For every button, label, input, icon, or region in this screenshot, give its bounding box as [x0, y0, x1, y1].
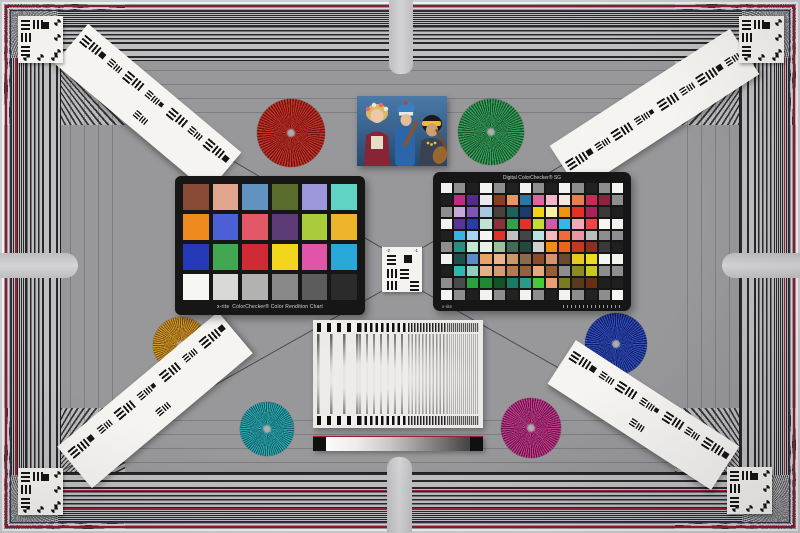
vertical-bars: [635, 422, 645, 431]
flower: [384, 107, 388, 111]
corner-resolution-target-bottom-right: [727, 467, 772, 514]
sg-color-patch: [454, 195, 465, 205]
sg-color-patch: [572, 266, 583, 276]
sg-color-patch: [586, 266, 597, 276]
sg-color-patch: [586, 254, 597, 264]
color-patch: [242, 274, 268, 300]
sg-color-patch: [441, 219, 452, 229]
color-patch: [331, 184, 357, 210]
solid-square-mark: [151, 382, 157, 388]
corner-resolution-target-bottom-left: [18, 468, 63, 515]
corner-resolution-target-top-right: [739, 16, 784, 63]
sg-color-patch: [507, 231, 518, 241]
sg-color-patch: [520, 290, 531, 300]
sg-color-patch: [559, 254, 570, 264]
sg-color-patch: [559, 242, 570, 252]
frequency-sweep-target: [313, 320, 483, 428]
sg-color-patch: [507, 266, 518, 276]
usaf-bars: [730, 471, 739, 481]
sg-color-patch: [612, 266, 623, 276]
sg-color-patch: [441, 290, 452, 300]
necklace-bead: [434, 142, 437, 145]
sg-color-patch: [480, 183, 491, 193]
color-patch: [183, 184, 209, 210]
sg-color-patch: [599, 242, 610, 252]
usaf-bars: [387, 255, 396, 265]
solid-square-mark: [98, 50, 106, 58]
sg-color-patch: [494, 219, 505, 229]
solid-square-mark: [589, 365, 597, 373]
usaf-bar-group: [634, 108, 655, 125]
usaf-bar-group: [97, 419, 113, 434]
color-patch: [272, 274, 298, 300]
usaf-bars: [742, 46, 751, 56]
sg-color-patch: [612, 207, 623, 217]
sg-color-patch: [546, 254, 557, 264]
sg-color-patch: [507, 195, 518, 205]
sg-color-patch: [494, 183, 505, 193]
sg-color-patch: [586, 290, 597, 300]
color-patch: [213, 244, 239, 270]
usaf-bar-group: [684, 426, 701, 440]
color-patch: [213, 214, 239, 240]
solid-square-mark: [751, 473, 758, 480]
sg-color-patch: [467, 219, 478, 229]
sg-color-patch: [599, 266, 610, 276]
sg-color-patch: [454, 266, 465, 276]
sg-color-patch: [480, 290, 491, 300]
vertical-bars: [194, 131, 204, 141]
usaf-bar-group: [122, 70, 145, 91]
usaf-bar-group: [107, 58, 123, 73]
color-patch: [183, 274, 209, 300]
sg-color-patch: [494, 207, 505, 217]
sg-color-patch: [533, 219, 544, 229]
sg-color-patch: [533, 231, 544, 241]
sg-color-patch: [546, 195, 557, 205]
bar-segment: [359, 416, 408, 425]
sg-color-patch: [494, 266, 505, 276]
sg-color-patch: [480, 266, 491, 276]
sg-color-patch: [533, 278, 544, 288]
sg-color-patch: [507, 183, 518, 193]
sg-color-patch: [599, 195, 610, 205]
sg-color-patch: [572, 231, 583, 241]
sg-color-patch: [546, 207, 557, 217]
usaf-bar-group: [700, 436, 730, 460]
center-resolution-target: -2 -1: [382, 247, 422, 292]
usaf-bar-group: [628, 418, 645, 432]
color-patch: [242, 214, 268, 240]
sg-color-patch: [494, 242, 505, 252]
solid-square-mark: [42, 22, 49, 29]
usaf-bar-group: [656, 92, 679, 112]
sg-color-patch: [467, 242, 478, 252]
sg-color-patch: [612, 219, 623, 229]
usaf-bar-group: [188, 125, 204, 140]
sg-color-patch: [454, 242, 465, 252]
color-patch: [272, 214, 298, 240]
usaf-bars: [21, 20, 30, 30]
colorchecker-classic-chart: x-rite ColorChecker® Color Rendition Cha…: [175, 176, 365, 315]
sg-color-patch: [480, 219, 491, 229]
sg-color-patch: [441, 207, 452, 217]
usaf-bar-group: [159, 361, 182, 382]
sg-color-patch: [612, 183, 623, 193]
siemens-star-magenta: [501, 398, 561, 458]
color-patch: [242, 244, 268, 270]
pinwheel-mark: [54, 34, 61, 41]
sg-color-patch: [546, 231, 557, 241]
pinwheel-mark: [772, 54, 779, 61]
pinwheel-mark: [54, 19, 61, 26]
color-patch: [331, 244, 357, 270]
sg-color-patch: [494, 195, 505, 205]
usaf-bars: [21, 485, 31, 494]
color-patch: [242, 184, 268, 210]
usaf-bar-group: [137, 381, 158, 400]
sg-color-patch: [586, 219, 597, 229]
sg-color-patch: [520, 183, 531, 193]
sg-color-patch: [467, 195, 478, 205]
usaf-bar-group: [615, 380, 638, 400]
usaf-bar-group: [113, 399, 136, 420]
usaf-bars: [730, 484, 740, 493]
sweep-segment: [408, 334, 447, 414]
sg-color-patch: [454, 231, 465, 241]
color-patch: [302, 214, 328, 240]
pinwheel-mark: [763, 470, 770, 477]
face: [401, 114, 412, 126]
cream-blouse: [371, 136, 383, 149]
sg-color-patch: [559, 290, 570, 300]
pinwheel-mark: [746, 505, 753, 512]
solid-square-mark: [404, 255, 412, 263]
sg-color-patch: [572, 207, 583, 217]
sg-color-patch: [572, 278, 583, 288]
sg-color-patch: [441, 278, 452, 288]
sg-color-patch: [441, 242, 452, 252]
sg-color-patch: [599, 231, 610, 241]
usaf-bars: [21, 472, 30, 482]
usaf-bars: [21, 33, 31, 42]
vertical-bars: [670, 417, 683, 430]
necklace-bead: [430, 143, 433, 146]
sg-color-patch: [507, 278, 518, 288]
sg-color-patch: [612, 231, 623, 241]
sg-color-patch: [586, 278, 597, 288]
pinwheel-mark: [54, 486, 61, 493]
solid-square-mark: [715, 64, 723, 72]
bottom-center-tab: [387, 457, 412, 533]
sg-color-patch: [533, 195, 544, 205]
usaf-bars: [742, 20, 751, 30]
top-center-tab: [389, 0, 413, 74]
sg-color-patch: [467, 290, 478, 300]
usaf-bar-group: [166, 107, 189, 128]
flower: [366, 107, 370, 111]
colorchecker-sg-grid: [441, 183, 623, 300]
vertical-bars: [624, 387, 637, 400]
sg-color-patch: [533, 207, 544, 217]
face: [371, 109, 384, 123]
sg-color-patch: [480, 242, 491, 252]
sg-color-patch: [441, 195, 452, 205]
pinwheel-mark: [775, 34, 782, 41]
pinwheel-mark: [37, 54, 44, 61]
pinwheel-mark: [37, 506, 44, 513]
usaf-bar-group: [678, 82, 695, 96]
bar-segment: [317, 416, 359, 425]
sg-color-patch: [586, 231, 597, 241]
sg-color-patch: [559, 195, 570, 205]
sg-color-patch: [546, 219, 557, 229]
sg-color-patch: [494, 231, 505, 241]
sg-color-patch: [441, 183, 452, 193]
pinwheel-mark: [758, 54, 765, 61]
color-patch: [183, 244, 209, 270]
sg-color-patch: [507, 219, 518, 229]
grayscale-wedge: [313, 436, 483, 451]
siemens-star-green: [458, 99, 524, 165]
usaf-bars: [21, 498, 30, 508]
bar-segment: [408, 323, 447, 332]
sg-color-patch: [520, 195, 531, 205]
usaf-bar-group: [568, 350, 598, 374]
sg-color-patch: [612, 242, 623, 252]
sg-color-patch: [612, 290, 623, 300]
bar-segment: [359, 323, 408, 332]
sg-color-patch: [520, 278, 531, 288]
sg-color-patch: [599, 207, 610, 217]
sg-color-patch: [441, 266, 452, 276]
usaf-bar-group: [198, 323, 227, 349]
usaf-bar-group: [598, 370, 615, 384]
usaf-bars: [21, 46, 30, 56]
sg-color-patch: [494, 254, 505, 264]
usaf-bar-group: [694, 62, 724, 86]
sg-color-patch: [520, 266, 531, 276]
color-patch: [272, 244, 298, 270]
vertical-bars: [131, 78, 144, 91]
sg-color-patch: [480, 195, 491, 205]
pinwheel-mark: [775, 19, 782, 26]
sg-color-patch: [546, 290, 557, 300]
sg-color-patch: [546, 278, 557, 288]
sg-color-patch: [441, 231, 452, 241]
solid-square-mark: [159, 101, 165, 107]
color-patch: [302, 244, 328, 270]
sg-ruler-marks: [563, 305, 621, 308]
pinwheel-mark: [51, 506, 58, 513]
corner-resolution-target-top-left: [18, 16, 63, 63]
sg-color-patch: [599, 183, 610, 193]
siemens-star-teal: [240, 402, 294, 456]
bar-segment: [447, 416, 479, 425]
usaf-bar-group: [68, 432, 97, 458]
solid-square-mark: [653, 407, 659, 413]
sg-color-patch: [599, 254, 610, 264]
solid-square-mark: [763, 22, 770, 29]
bar-segment: [408, 416, 447, 425]
sample-photo-musicians: [357, 96, 447, 166]
sg-color-patch: [441, 254, 452, 264]
usaf-bar-group: [639, 397, 660, 414]
sg-color-patch: [612, 278, 623, 288]
usaf-bar-group: [182, 348, 198, 363]
sg-color-patch: [480, 278, 491, 288]
sg-color-patch: [559, 219, 570, 229]
solid-square-mark: [222, 154, 230, 162]
sg-color-patch: [533, 183, 544, 193]
usaf-bars: [387, 281, 397, 290]
sg-color-patch: [520, 242, 531, 252]
sg-color-patch: [494, 290, 505, 300]
sg-color-patch: [586, 242, 597, 252]
pinwheel-mark: [760, 505, 767, 512]
sg-color-patch: [467, 278, 478, 288]
right-center-tab: [722, 253, 800, 278]
hat-ornament: [404, 101, 408, 105]
usaf-bars: [387, 269, 397, 278]
sg-color-patch: [520, 207, 531, 217]
sg-color-patch: [559, 183, 570, 193]
color-patch: [302, 184, 328, 210]
sg-color-patch: [612, 254, 623, 264]
caption-text: ColorChecker® Color Rendition Chart: [232, 304, 323, 310]
sg-color-patch: [559, 278, 570, 288]
bar-segment: [447, 323, 479, 332]
color-patch: [183, 214, 209, 240]
sg-color-patch: [467, 183, 478, 193]
sg-color-patch: [559, 207, 570, 217]
pinwheel-mark: [763, 485, 770, 492]
solid-square-mark: [87, 434, 95, 442]
color-patch: [331, 274, 357, 300]
usaf-bar-group: [724, 52, 741, 66]
xrite-logo: x-rite: [217, 304, 229, 310]
sg-color-patch: [546, 183, 557, 193]
sg-color-patch: [586, 207, 597, 217]
square-wave-bar: [317, 416, 479, 425]
usaf-bar-group: [594, 137, 611, 151]
bar-segment: [317, 323, 359, 332]
vertical-bars: [691, 431, 701, 440]
scale-label: -2: [386, 248, 390, 253]
sg-color-patch: [467, 266, 478, 276]
usaf-bars: [400, 269, 409, 279]
solid-square-mark: [721, 450, 729, 458]
sg-color-patch: [454, 290, 465, 300]
sg-color-patch: [507, 207, 518, 217]
sweep-segment: [317, 334, 359, 414]
color-patch: [213, 184, 239, 210]
sg-color-patch: [572, 183, 583, 193]
sg-color-patch: [572, 254, 583, 264]
sg-color-patch: [599, 219, 610, 229]
sg-color-patch: [546, 266, 557, 276]
sg-color-patch: [467, 254, 478, 264]
sg-color-patch: [507, 290, 518, 300]
sweep-lines-area: [317, 334, 479, 414]
sg-color-patch: [454, 219, 465, 229]
colorchecker-sg-title: Digital ColorChecker® SG: [433, 175, 631, 181]
sg-color-patch: [480, 207, 491, 217]
sg-color-patch: [572, 290, 583, 300]
usaf-bars: [730, 497, 739, 507]
colorchecker-classic-caption: x-rite ColorChecker® Color Rendition Cha…: [183, 300, 357, 313]
xrite-logo: x-rite: [442, 304, 452, 309]
color-patch: [331, 214, 357, 240]
colorchecker-sg-chart: Digital ColorChecker® SG x-rite: [433, 172, 631, 311]
pinwheel-mark: [51, 54, 58, 61]
sg-color-patch: [467, 207, 478, 217]
usaf-bar-group: [79, 34, 108, 60]
color-patch: [302, 274, 328, 300]
color-patch: [213, 274, 239, 300]
sg-color-patch: [533, 242, 544, 252]
sg-color-patch: [454, 278, 465, 288]
solid-square-mark: [585, 148, 593, 156]
solid-square-mark: [42, 474, 49, 481]
color-patch: [272, 184, 298, 210]
usaf-bars: [410, 281, 419, 291]
sweep-segment: [447, 334, 479, 414]
sg-color-patch: [480, 254, 491, 264]
sg-color-patch: [520, 231, 531, 241]
vertical-bars: [175, 114, 188, 127]
pinwheel-mark: [54, 471, 61, 478]
siemens-star-red: [257, 99, 325, 167]
sweep-segment: [359, 334, 408, 414]
sg-color-patch: [572, 242, 583, 252]
sg-color-patch: [520, 219, 531, 229]
vertical-bars: [113, 63, 123, 73]
solid-square-mark: [217, 325, 225, 333]
usaf-bar-group: [145, 90, 166, 109]
sg-color-patch: [572, 219, 583, 229]
sg-color-patch: [559, 231, 570, 241]
sg-color-patch: [599, 290, 610, 300]
sg-color-patch: [454, 254, 465, 264]
camera-test-chart: x-rite ColorChecker® Color Rendition Cha…: [0, 0, 800, 533]
sg-color-patch: [467, 231, 478, 241]
colorchecker-classic-grid: [183, 184, 357, 300]
sg-color-patch: [533, 266, 544, 276]
sg-color-patch: [454, 183, 465, 193]
sg-color-patch: [533, 254, 544, 264]
sg-color-patch: [599, 278, 610, 288]
sg-color-patch: [559, 266, 570, 276]
usaf-bar-group: [155, 402, 171, 417]
solid-square-mark: [648, 109, 654, 115]
left-center-tab: [0, 253, 78, 278]
sg-color-patch: [533, 290, 544, 300]
scale-label: -1: [414, 248, 418, 253]
flower: [379, 103, 383, 107]
usaf-bars: [742, 33, 752, 42]
usaf-bar-group: [661, 410, 684, 430]
necklace-bead: [427, 142, 430, 145]
usaf-bar-group: [203, 138, 232, 164]
sg-color-patch: [586, 195, 597, 205]
sg-color-patch: [507, 242, 518, 252]
sg-color-patch: [546, 242, 557, 252]
sg-color-patch: [520, 254, 531, 264]
usaf-bar-group: [610, 121, 633, 141]
sg-color-patch: [612, 195, 623, 205]
square-wave-bar: [317, 323, 479, 332]
